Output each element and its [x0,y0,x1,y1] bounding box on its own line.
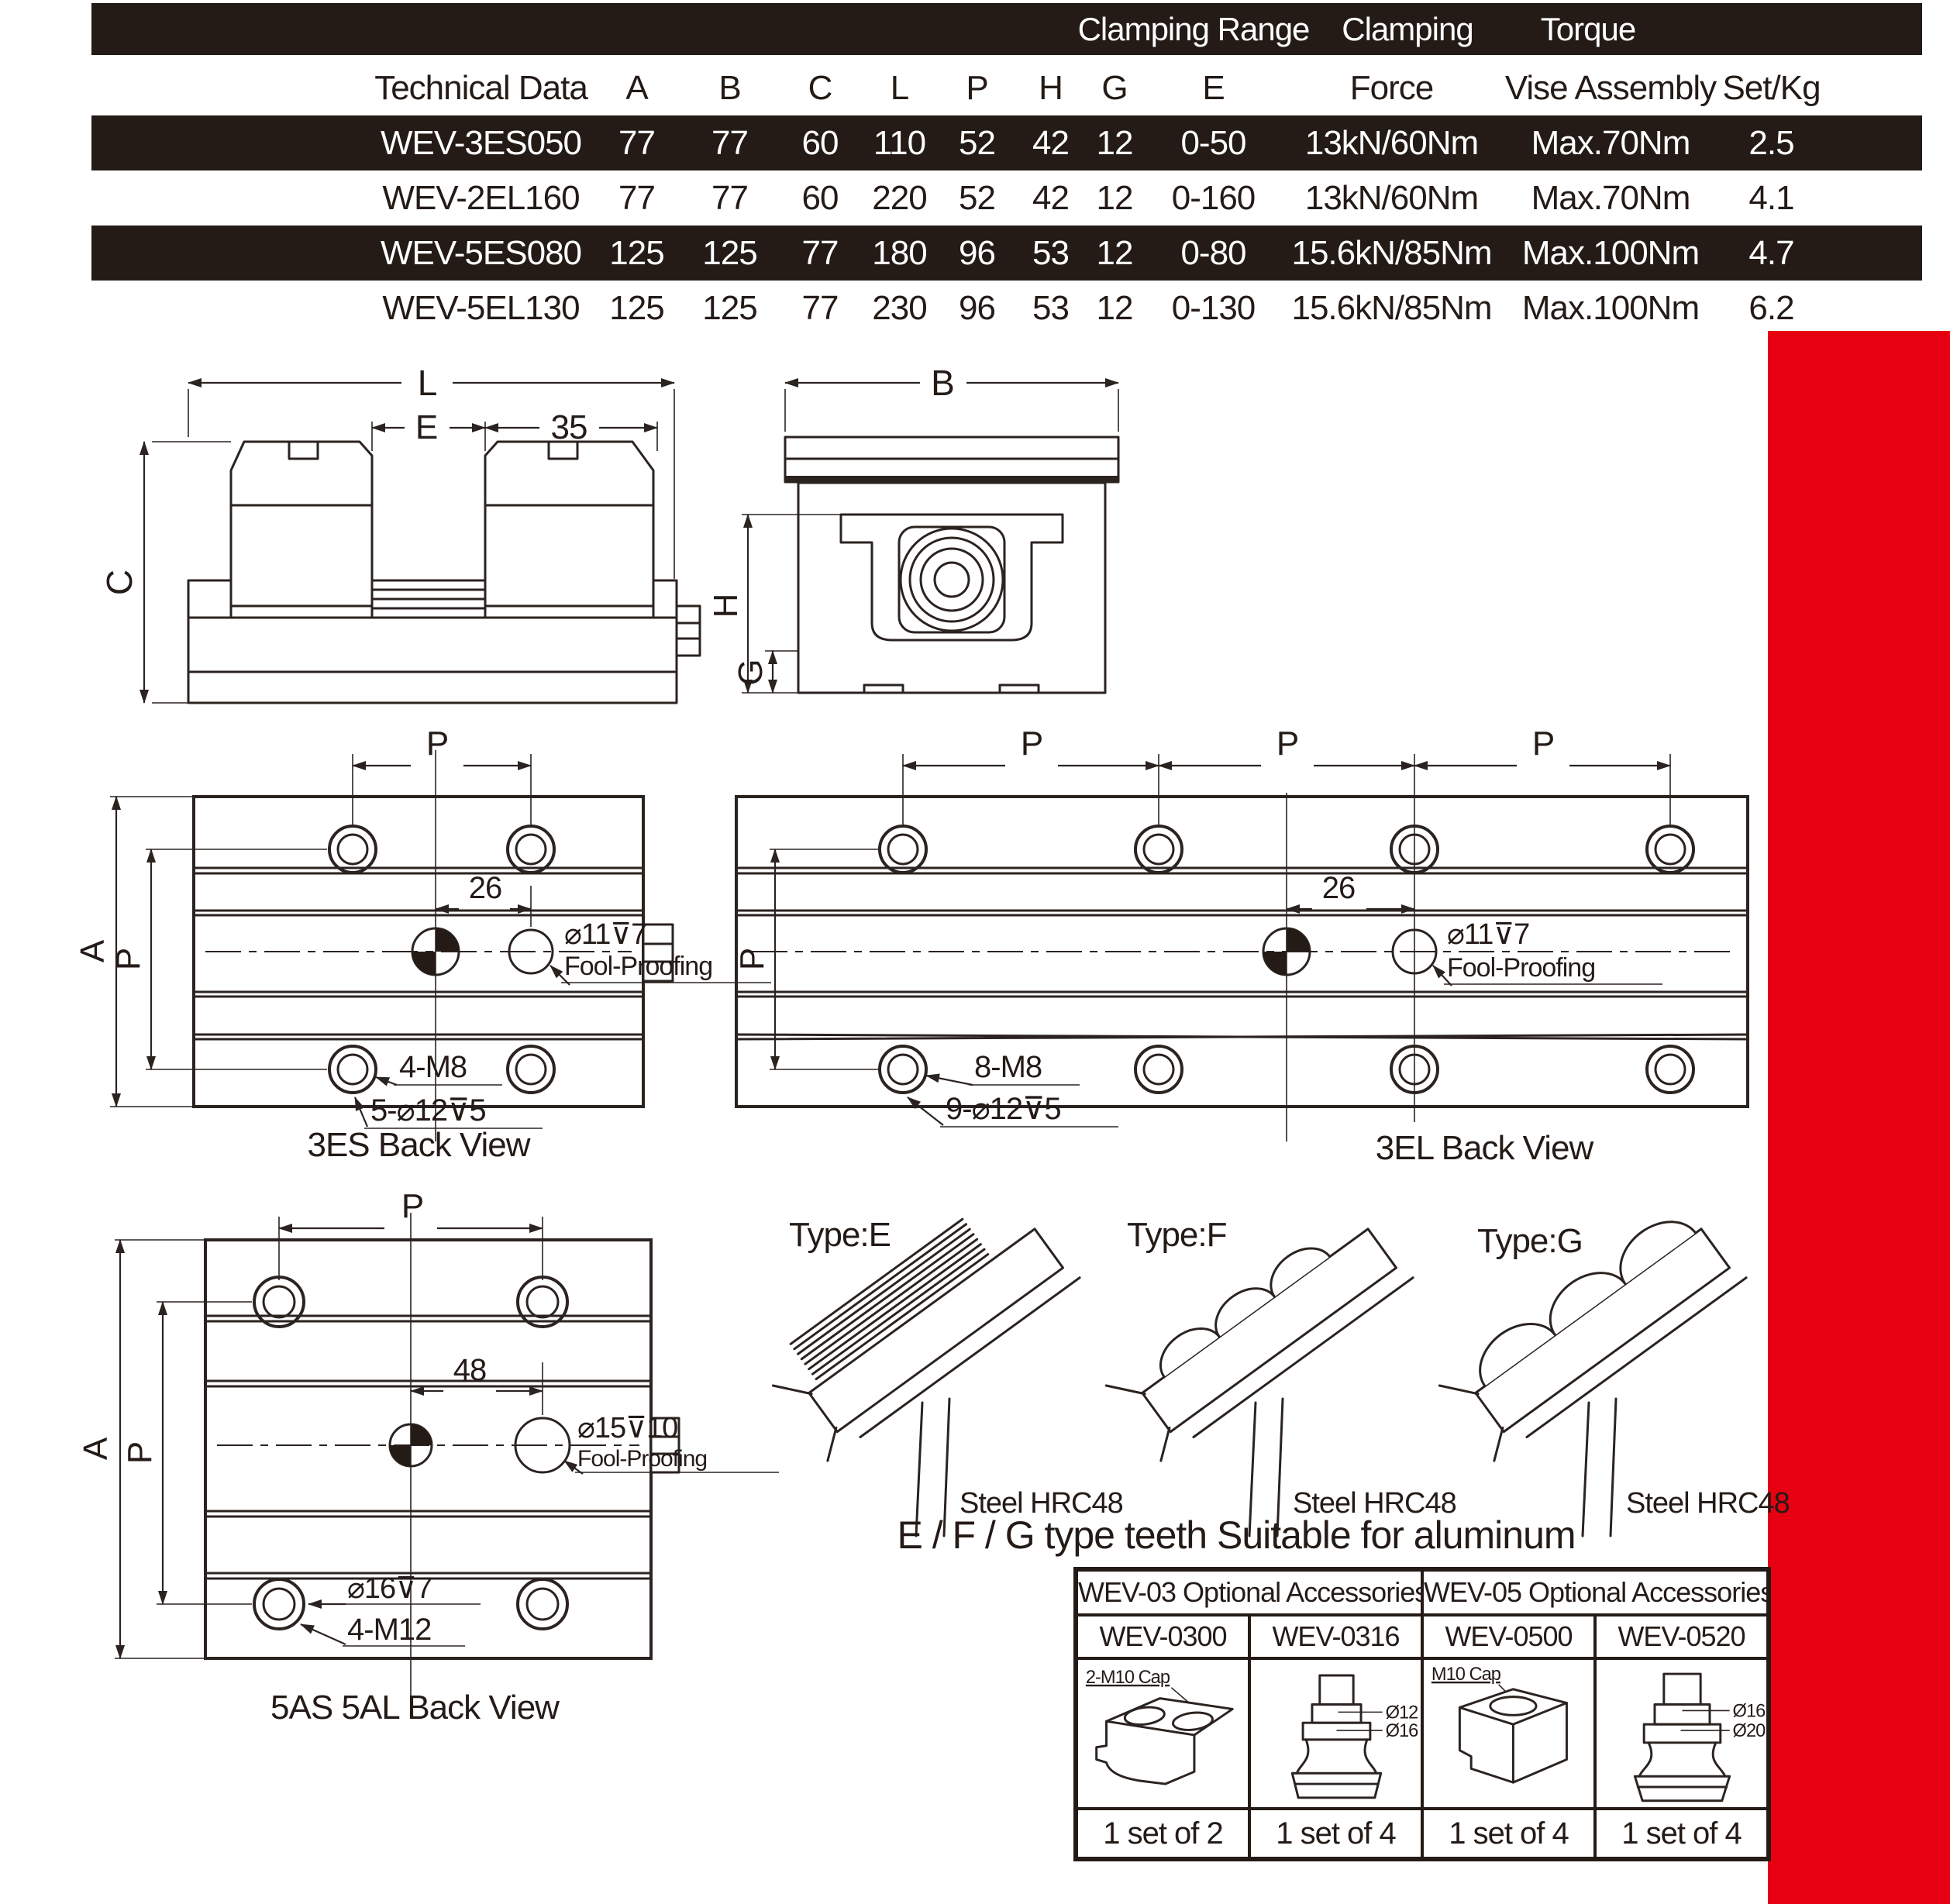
model-wev-0300: WEV-0300 [1077,1615,1249,1658]
spec-cell: 180 [863,234,936,273]
spec-cell: 2.5 [1719,124,1824,163]
spec-row: WEV-5ES080 125 125 77 180 96 53 12 0-80 … [91,226,1922,281]
column-header-g: G [1084,69,1146,108]
accessories-drawing-row: 2-M10 Cap Ø12 Ø16 [1077,1658,1768,1809]
model-wev-0316: WEV-0316 [1249,1615,1422,1658]
accessory-drawing-cell: 2-M10 Cap [1077,1658,1249,1809]
spec-cell: 60 [777,179,863,218]
dim-label-26: 26 [469,871,502,905]
wev-0316-sketch: Ø12 Ø16 [1252,1660,1419,1806]
dim-label-p-left: P [109,949,147,970]
spec-cell: 77 [777,234,863,273]
spec-table: Clamping Range Clamping Torque Technical… [91,3,1922,336]
group-header-wev03: WEV-03 Optional Accessories [1077,1570,1422,1615]
caption-3el: 3EL Back View [1376,1129,1594,1167]
spec-cell: 125 [591,289,682,328]
spec-cell: 4.1 [1719,179,1824,218]
back-3el-body [736,797,1748,1107]
column-header-force: Force [1281,69,1502,108]
dim-label-p3: P [1532,725,1554,763]
dim-label-26: 26 [1322,871,1356,905]
hole-note: ⌀11⊽7 [1447,918,1529,951]
hole-note: ⌀11⊽7 [564,918,646,951]
side-view-drawing: B H G [725,350,1147,714]
spec-cell: 13kN/60Nm [1281,179,1502,218]
spec-cell: 125 [682,234,777,273]
dia-label: Ø12 [1386,1703,1418,1723]
fool-proofing-label: Fool-Proofing [577,1446,707,1472]
front-view-body [188,442,700,703]
column-header-h: H [1018,69,1084,108]
cbore-note: 5-⌀12⊽5 [370,1093,486,1128]
dim-label-p-top: P [401,1187,423,1225]
spec-cell: 96 [936,289,1018,328]
hole-note: ⌀15⊽10 [577,1412,677,1444]
dia-label: Ø16 [1733,1701,1766,1721]
column-header-l: L [863,69,936,108]
qty-cell: 1 set of 4 [1249,1809,1422,1858]
spec-cell: 110 [863,124,936,163]
cap-label: M10 Cap [1431,1665,1501,1685]
column-header-model: Technical Data [370,69,591,108]
column-header-e: E [1146,69,1281,108]
spec-cell: 52 [936,124,1018,163]
teeth-type-f-drawing: Type:F Steel HRC48 [1101,1178,1434,1542]
dim-label-h: H [707,594,745,618]
accessory-drawing-cell: M10 Cap [1422,1658,1595,1809]
spec-cell: 0-130 [1146,289,1281,328]
dim-label-p-left: P [733,949,771,970]
spec-cell: 6.2 [1719,289,1824,328]
spec-cell: 77 [682,179,777,218]
dim-label-e: E [415,408,437,446]
dim-label-c: C [99,570,140,595]
spec-cell: 77 [777,289,863,328]
spec-row: WEV-3ES050 77 77 60 110 52 42 12 0-50 13… [91,115,1922,170]
qty-cell: 1 set of 4 [1595,1809,1768,1858]
front-view-drawing: L E 35 C [115,350,711,714]
spec-cell: 12 [1084,124,1146,163]
wev-0520-sketch: Ø16 Ø20 [1598,1660,1765,1806]
spec-cell: 52 [936,179,1018,218]
spec-cell: 12 [1084,179,1146,218]
dim-label-l: L [418,363,437,403]
type-e-label: Type:E [789,1216,891,1254]
spec-row: WEV-5EL130 125 125 77 230 96 53 12 0-130… [91,281,1922,336]
dim-label-a: A [74,939,112,962]
thread-note: 4-M8 [399,1050,467,1084]
dia-label: Ø20 [1733,1721,1766,1741]
model-wev-0520: WEV-0520 [1595,1615,1768,1658]
spec-cell: 15.6kN/85Nm [1281,234,1502,273]
cbore-note: 9-⌀12⊽5 [946,1092,1061,1126]
spec-cell: 12 [1084,289,1146,328]
caption-5as: 5AS 5AL Back View [270,1689,560,1727]
column-header-p: P [936,69,1018,108]
spec-cell: 0-80 [1146,234,1281,273]
spec-column-header-row: Technical Data A B C L P H G E Force Vis… [91,61,1922,115]
side-view-body [785,437,1118,693]
catalog-page: Clamping Range Clamping Torque Technical… [0,0,1950,1904]
spec-cell: Max.70Nm [1502,124,1719,163]
dia-label: Ø16 [1386,1721,1419,1741]
back-view-3es-drawing: P A P 26 ⌀11⊽7 Fool-Proofing 4-M8 5-⌀12⊽… [78,719,798,1165]
dim-label-p-left: P [121,1442,159,1464]
column-header-c: C [777,69,863,108]
qty-cell: 1 set of 2 [1077,1809,1249,1858]
spec-cell: 220 [863,179,936,218]
spec-cell: 0-50 [1146,124,1281,163]
back-3el-dimensions: P P P P 26 ⌀11⊽7 Fool-Proofing 8-M8 9-⌀1… [733,725,1670,1167]
spec-cell: Max.100Nm [1502,234,1719,273]
thread-note: 8-M8 [974,1050,1042,1084]
spec-cell: 77 [682,124,777,163]
spec-cell: 125 [591,234,682,273]
spec-cell: 60 [777,124,863,163]
type-f-label: Type:F [1127,1216,1227,1254]
spec-cell: 77 [591,124,682,163]
back-view-3el-drawing: P P P P 26 ⌀11⊽7 Fool-Proofing 8-M8 9-⌀1… [709,719,1763,1169]
dim-label-35: 35 [551,408,587,446]
column-header-b: B [682,69,777,108]
group-header-wev05: WEV-05 Optional Accessories [1422,1570,1768,1615]
spec-cell: 53 [1018,289,1084,328]
wev-0500-sketch: M10 Cap [1425,1660,1592,1806]
dim-label-b: B [931,363,954,403]
accessory-drawing-cell: Ø16 Ø20 [1595,1658,1768,1809]
spec-cell: 125 [682,289,777,328]
spec-cell: 42 [1018,179,1084,218]
cbore-note: ⌀16⊽7 [347,1572,432,1605]
back-view-5as-drawing: P A P 48 ⌀15⊽10 Fool-Proofing ⌀16⊽7 4-M1… [78,1186,798,1728]
thread-note: 4-M12 [347,1613,431,1647]
type-g-label: Type:G [1477,1222,1583,1260]
accessories-group-header-row: WEV-03 Optional Accessories WEV-05 Optio… [1077,1570,1768,1615]
accessories-model-row: WEV-0300 WEV-0316 WEV-0500 WEV-0520 [1077,1615,1768,1658]
dim-label-p2: P [1276,725,1298,763]
dim-label-a: A [77,1437,115,1460]
dim-label-48: 48 [453,1353,487,1387]
teeth-type-g-drawing: Type:G Steel HRC48 [1434,1178,1767,1542]
spec-cell: 96 [936,234,1018,273]
wev-0300-sketch: 2-M10 Cap [1080,1660,1246,1806]
dim-label-p1: P [1021,725,1042,763]
teeth-type-e-drawing: Type:E Steel HRC48 [767,1178,1101,1542]
accessory-drawing-cell: Ø12 Ø16 [1249,1658,1422,1809]
spec-group-header-row: Clamping Range Clamping Torque [91,3,1922,55]
spec-cell: 12 [1084,234,1146,273]
model-cell: WEV-5ES080 [370,234,591,273]
dim-label-g: G [732,659,770,685]
column-header-set-kg: Set/Kg [1719,69,1824,108]
fool-proofing-label: Fool-Proofing [1447,953,1595,983]
spec-cell: 77 [591,179,682,218]
column-header-a: A [591,69,682,108]
accessories-qty-row: 1 set of 2 1 set of 4 1 set of 4 1 set o… [1077,1809,1768,1858]
spec-cell: 13kN/60Nm [1281,124,1502,163]
cap-label: 2-M10 Cap [1086,1668,1170,1688]
spec-cell: 0-160 [1146,179,1281,218]
qty-cell: 1 set of 4 [1422,1809,1595,1858]
spec-cell: Max.70Nm [1502,179,1719,218]
spec-cell: 42 [1018,124,1084,163]
dim-label-p-top: P [426,725,448,763]
model-cell: WEV-5EL130 [370,289,591,328]
teeth-caption: E / F / G type teeth Suitable for alumin… [767,1513,1705,1558]
group-header-torque: Torque [1495,3,1681,55]
spec-cell: 15.6kN/85Nm [1281,289,1502,328]
model-wev-0500: WEV-0500 [1422,1615,1595,1658]
caption-3es: 3ES Back View [307,1126,530,1164]
red-accent-bar [1768,331,1950,1904]
fool-proofing-label: Fool-Proofing [564,952,712,981]
model-cell: WEV-2EL160 [370,179,591,218]
spec-cell: 53 [1018,234,1084,273]
spec-cell: 4.7 [1719,234,1824,273]
accessories-table: WEV-03 Optional Accessories WEV-05 Optio… [1073,1567,1771,1861]
spec-cell: Max.100Nm [1502,289,1719,328]
spec-cell: 230 [863,289,936,328]
column-header-vise-assembly: Vise Assembly [1502,69,1719,108]
model-cell: WEV-3ES050 [370,124,591,163]
group-header-clamping: Clamping [1291,3,1524,55]
spec-row: WEV-2EL160 77 77 60 220 52 42 12 0-160 1… [91,170,1922,226]
